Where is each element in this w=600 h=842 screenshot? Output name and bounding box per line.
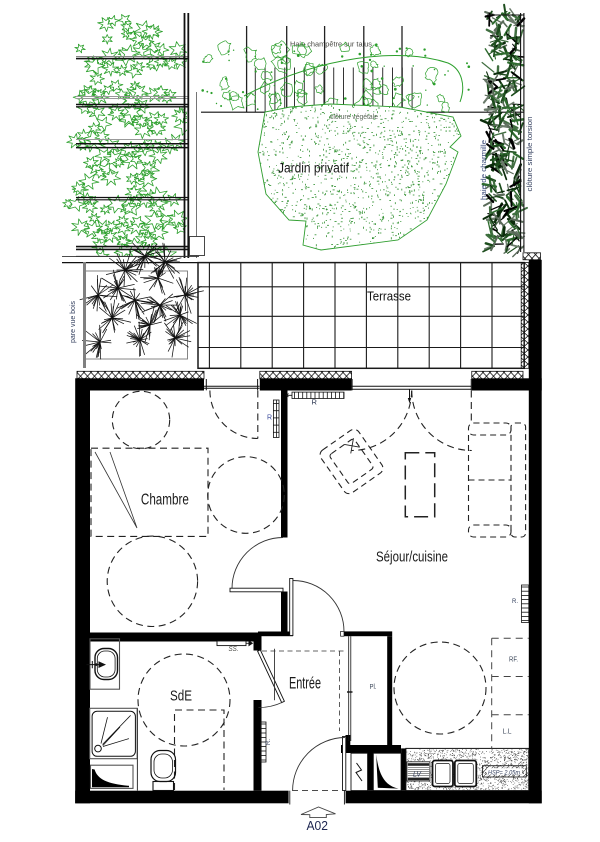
svg-text:R.: R. [512, 599, 518, 605]
svg-text:RF.: RF. [509, 657, 518, 664]
svg-text:R.: R. [266, 739, 272, 745]
svg-text:clôture végétale: clôture végétale [330, 114, 378, 121]
svg-text:L.L: L.L [503, 729, 512, 736]
svg-text:Haie champêtre sur talus: Haie champêtre sur talus [290, 40, 372, 49]
svg-text:SdE: SdE [170, 689, 192, 705]
svg-text:SS.: SS. [229, 646, 239, 653]
svg-text:A02: A02 [307, 818, 329, 833]
svg-text:clôture simple torsion: clôture simple torsion [527, 116, 534, 191]
svg-text:Terrasse: Terrasse [367, 289, 411, 304]
svg-text:R: R [267, 415, 272, 422]
svg-text:Séjour/cuisine: Séjour/cuisine [376, 550, 448, 566]
svg-text:HSP= 2,05m: HSP= 2,05m [488, 771, 520, 777]
svg-text:R: R [312, 398, 318, 407]
svg-text:Entrée: Entrée [289, 675, 321, 693]
svg-text:Pl.: Pl. [370, 682, 377, 691]
svg-text:LV: LV [413, 770, 422, 779]
svg-text:haie de charmille: haie de charmille [481, 140, 488, 200]
svg-text:Chambre: Chambre [141, 492, 189, 509]
svg-text:pare vue bois: pare vue bois [70, 300, 77, 343]
svg-text:Jardin privatif: Jardin privatif [278, 161, 349, 176]
